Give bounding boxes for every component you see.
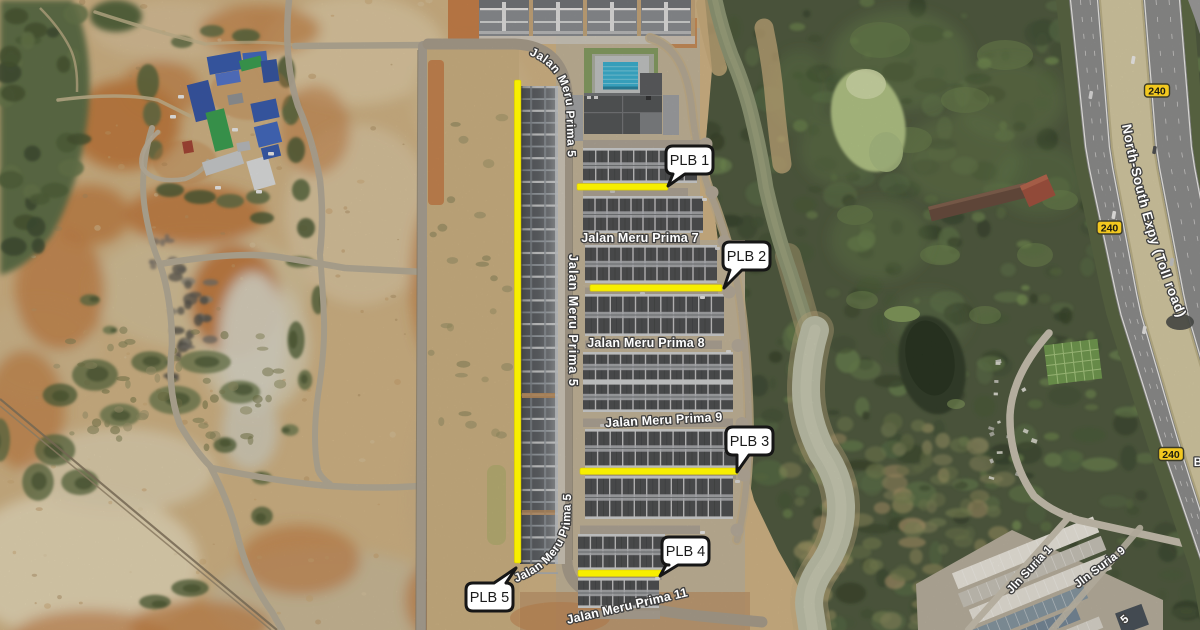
svg-text:PLB 3: PLB 3: [730, 434, 770, 450]
svg-text:Jalan Meru Prima 5: Jalan Meru Prima 5: [566, 254, 580, 387]
svg-text:240: 240: [1148, 85, 1166, 97]
svg-text:PLB 5: PLB 5: [470, 590, 510, 606]
svg-text:PLB 1: PLB 1: [670, 153, 710, 169]
svg-text:B: B: [1194, 457, 1200, 469]
svg-text:Jalan Meru Prima 8: Jalan Meru Prima 8: [587, 336, 705, 350]
svg-text:240: 240: [1101, 222, 1119, 234]
svg-text:PLB 4: PLB 4: [666, 544, 706, 560]
svg-text:Jalan Meru Prima 7: Jalan Meru Prima 7: [581, 231, 699, 245]
svg-text:240: 240: [1162, 449, 1180, 461]
svg-text:PLB 2: PLB 2: [727, 249, 767, 265]
